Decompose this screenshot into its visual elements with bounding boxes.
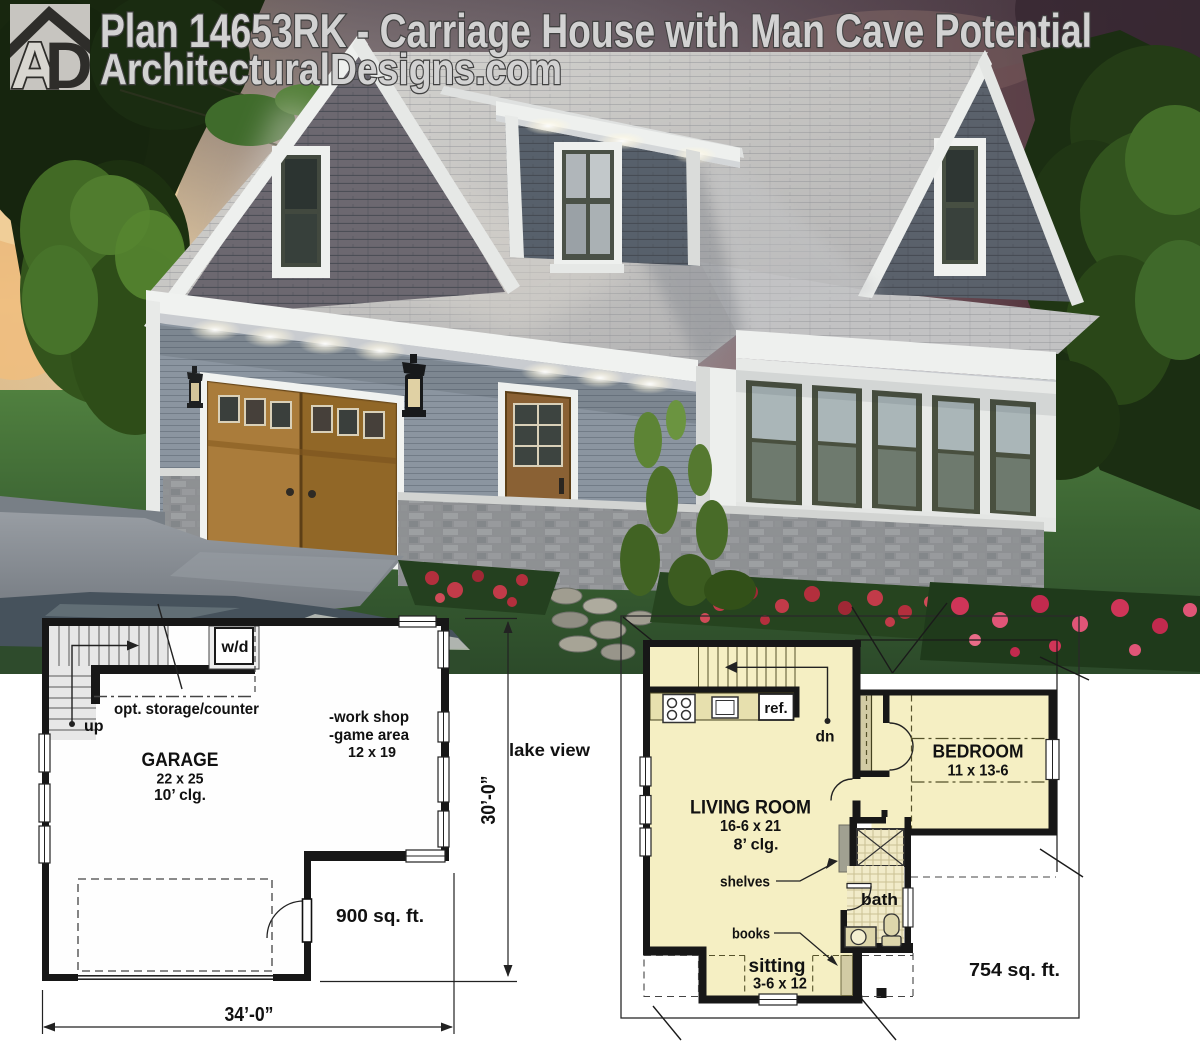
svg-text:shelves: shelves <box>720 874 770 891</box>
svg-text:3-6 x 12: 3-6 x 12 <box>753 976 807 993</box>
svg-text:lake view: lake view <box>509 740 590 760</box>
svg-text:bath: bath <box>861 891 898 909</box>
svg-text:30’-0”: 30’-0” <box>478 776 500 825</box>
svg-text:-game area: -game area <box>329 727 409 744</box>
svg-text:ArchitecturalDesigns.com: ArchitecturalDesigns.com <box>100 45 562 94</box>
svg-text:10’ clg.: 10’ clg. <box>154 787 206 804</box>
svg-text:LIVING ROOM: LIVING ROOM <box>690 798 811 819</box>
svg-text:GARAGE: GARAGE <box>142 750 219 771</box>
svg-text:-work shop: -work shop <box>329 709 409 726</box>
svg-text:sitting: sitting <box>749 956 806 977</box>
svg-text:12 x 19: 12 x 19 <box>348 744 396 761</box>
svg-text:11 x 13-6: 11 x 13-6 <box>948 763 1009 780</box>
svg-text:books: books <box>732 926 770 943</box>
svg-text:opt. storage/counter: opt. storage/counter <box>114 701 259 718</box>
svg-text:900 sq. ft.: 900 sq. ft. <box>336 905 424 926</box>
svg-text:754 sq. ft.: 754 sq. ft. <box>969 959 1060 980</box>
svg-text:D: D <box>45 28 93 102</box>
svg-text:ref.: ref. <box>764 700 787 717</box>
svg-text:34’-0”: 34’-0” <box>225 1004 274 1026</box>
svg-text:BEDROOM: BEDROOM <box>933 741 1024 762</box>
svg-text:up: up <box>84 718 104 735</box>
svg-text:dn: dn <box>816 729 835 746</box>
svg-text:16-6 x 21: 16-6 x 21 <box>720 818 781 835</box>
svg-text:w/d: w/d <box>220 639 248 656</box>
svg-text:22 x 25: 22 x 25 <box>157 771 204 788</box>
svg-text:8’ clg.: 8’ clg. <box>734 837 779 854</box>
